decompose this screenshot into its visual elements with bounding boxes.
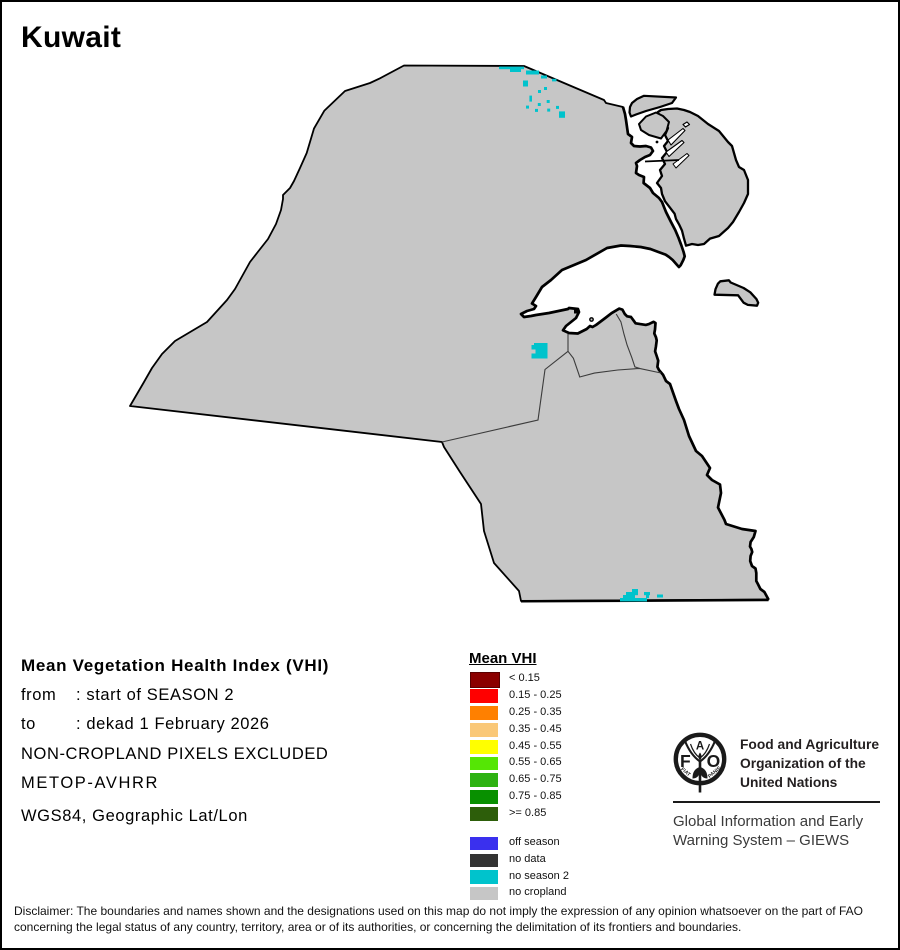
svg-text:A: A [696, 741, 704, 753]
